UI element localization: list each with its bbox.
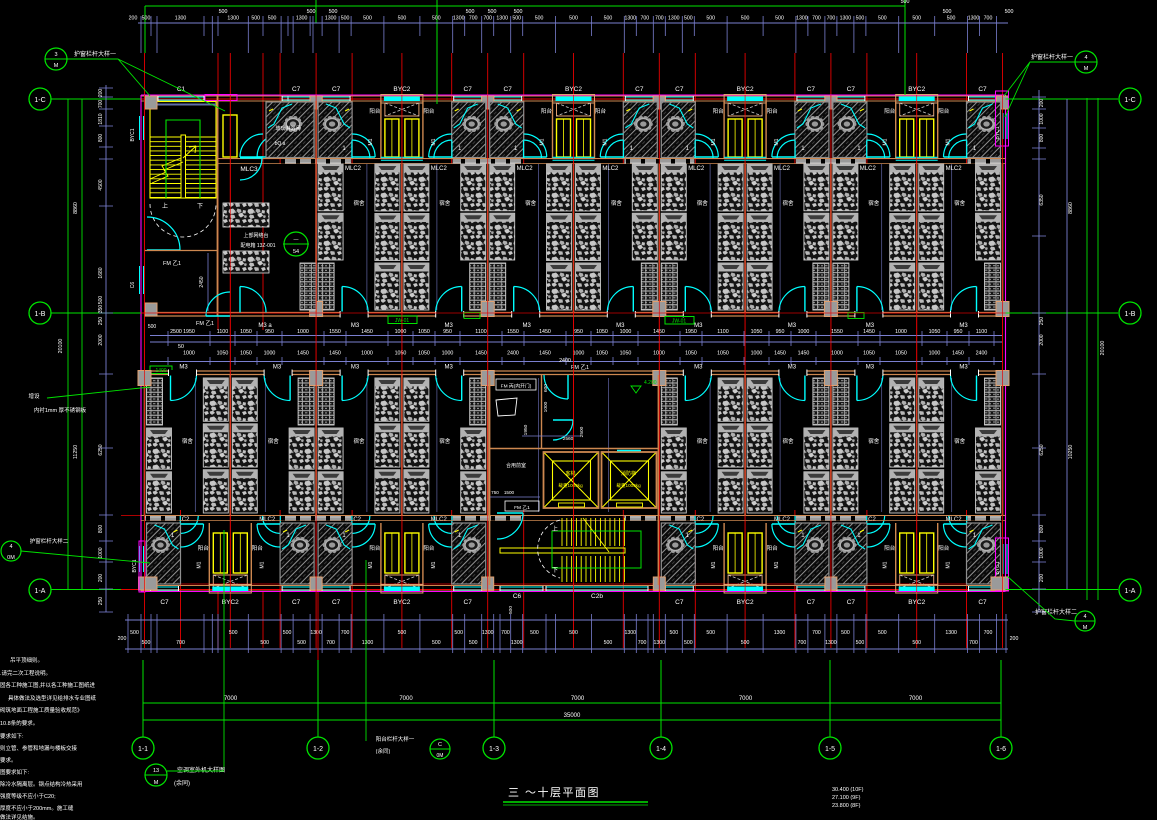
svg-text:500: 500: [469, 640, 478, 646]
svg-text:1450: 1450: [539, 351, 551, 357]
svg-text:C7: C7: [464, 599, 473, 606]
svg-text:700: 700: [483, 16, 492, 22]
svg-text:BYC2: BYC2: [393, 86, 410, 93]
svg-text:阳台: 阳台: [938, 107, 950, 115]
svg-text:(余同): (余同): [174, 779, 190, 787]
svg-text:1300: 1300: [362, 640, 374, 646]
svg-text:700: 700: [176, 640, 185, 646]
svg-text:35000: 35000: [564, 713, 581, 719]
svg-text:M3: M3: [351, 365, 360, 371]
svg-text:—: —: [294, 237, 299, 243]
svg-text:500: 500: [142, 16, 151, 22]
svg-text:1400: 1400: [155, 368, 166, 374]
svg-text:4: 4: [1083, 614, 1086, 620]
svg-text:.请完二次工程说明。: .请完二次工程说明。: [0, 669, 51, 677]
svg-text:1000: 1000: [297, 329, 309, 335]
svg-text:M1: M1: [883, 138, 889, 145]
svg-text:BYC2: BYC2: [393, 599, 410, 606]
svg-text:500: 500: [841, 630, 850, 636]
svg-text:27.100 (9F): 27.100 (9F): [832, 795, 861, 801]
svg-text:500: 500: [684, 640, 693, 646]
svg-text:1050: 1050: [240, 329, 252, 335]
svg-text:砌筑地面工程施工质量验收规范》: 砌筑地面工程施工质量验收规范》: [0, 706, 83, 714]
svg-text:500: 500: [901, 0, 910, 5]
svg-text:1300: 1300: [325, 16, 337, 22]
svg-text:500: 500: [307, 9, 316, 15]
svg-text:500: 500: [148, 324, 157, 330]
svg-text:500: 500: [706, 16, 715, 22]
svg-text:10.8条的要求。: 10.8条的要求。: [0, 719, 38, 727]
svg-text:宿舍: 宿舍: [954, 199, 966, 207]
svg-text:M3 a: M3 a: [258, 323, 272, 329]
svg-text:3: 3: [54, 52, 57, 58]
svg-text:bQ a: bQ a: [275, 141, 286, 147]
svg-text:500: 500: [260, 640, 269, 646]
svg-text:1300: 1300: [945, 630, 957, 636]
svg-text:1-A: 1-A: [1125, 588, 1136, 595]
svg-text:BYC1: BYC1: [130, 128, 136, 141]
svg-text:M1: M1: [259, 561, 265, 568]
svg-text:1-3: 1-3: [489, 746, 499, 753]
svg-text:500: 500: [530, 630, 539, 636]
svg-text:M3: M3: [179, 365, 188, 371]
svg-text:700: 700: [812, 16, 821, 22]
svg-text:MLC2: MLC2: [259, 517, 276, 523]
svg-text:宿舍: 宿舍: [697, 437, 709, 445]
svg-text:500: 500: [669, 630, 678, 636]
svg-text:阳台: 阳台: [713, 544, 725, 552]
svg-text:阳台: 阳台: [369, 544, 381, 552]
svg-text:宿舍: 宿舍: [525, 199, 537, 207]
svg-text:500: 500: [1005, 9, 1014, 15]
svg-text:FM 乙1: FM 乙1: [514, 504, 530, 511]
svg-text:500: 500: [363, 16, 372, 22]
svg-text:阳台: 阳台: [595, 107, 607, 115]
svg-text:1450: 1450: [297, 351, 309, 357]
svg-text:200: 200: [129, 16, 138, 22]
svg-text:700: 700: [501, 630, 510, 636]
svg-text:阳台: 阳台: [884, 107, 896, 115]
svg-text:消防梯: 消防梯: [621, 470, 636, 477]
svg-text:1950: 1950: [523, 424, 529, 435]
svg-text:M1: M1: [368, 138, 374, 145]
svg-text:2400: 2400: [507, 351, 519, 357]
svg-text:1450: 1450: [329, 351, 341, 357]
svg-text:吊平顶细则。: 吊平顶细则。: [10, 656, 43, 664]
svg-text:三 ～十层平面图: 三 ～十层平面图: [508, 785, 600, 799]
svg-text:M: M: [1083, 625, 1088, 631]
svg-text:M1: M1: [883, 561, 889, 568]
svg-text:M: M: [1084, 66, 1089, 72]
svg-text:1450: 1450: [539, 329, 551, 335]
svg-text:7000: 7000: [399, 696, 413, 702]
svg-text:6350: 6350: [1039, 194, 1045, 205]
svg-text:宿舍: 宿舍: [611, 199, 623, 207]
svg-text:M1: M1: [774, 138, 780, 145]
svg-text:强度等级不应小于C20;: 强度等级不应小于C20;: [0, 792, 56, 800]
svg-text:FM 丙(内开门): FM 丙(内开门): [501, 383, 532, 390]
svg-text:700: 700: [640, 16, 649, 22]
svg-text:1450: 1450: [863, 329, 875, 335]
svg-text:C7: C7: [160, 599, 169, 606]
svg-text:500: 500: [432, 16, 441, 22]
svg-text:M1: M1: [368, 561, 374, 568]
svg-text:宿舍: 宿舍: [353, 199, 365, 207]
svg-text:C7: C7: [978, 86, 987, 93]
svg-text:MLC2: MLC2: [860, 166, 877, 172]
svg-text:500: 500: [98, 296, 104, 305]
svg-text:护窗栏杆大样二: 护窗栏杆大样二: [1035, 608, 1077, 616]
svg-text:500: 500: [912, 16, 921, 22]
svg-text:8860: 8860: [1068, 202, 1074, 214]
svg-text:宿舍: 宿舍: [782, 437, 794, 445]
svg-text:1450: 1450: [798, 351, 810, 357]
svg-text:MLC2: MLC2: [946, 517, 963, 523]
svg-text:500: 500: [741, 16, 750, 22]
svg-text:700: 700: [984, 630, 993, 636]
svg-text:除冷水隔离层。钢点结构冷热采用: 除冷水隔离层。钢点结构冷热采用: [0, 780, 83, 788]
svg-text:950: 950: [443, 329, 452, 335]
svg-text:C7: C7: [292, 86, 301, 93]
svg-text:护窗栏杆大样一: 护窗栏杆大样一: [1031, 53, 1073, 61]
svg-text:800: 800: [1039, 134, 1045, 143]
svg-text:上: 上: [162, 202, 168, 210]
svg-text:M1: M1: [946, 138, 952, 145]
svg-text:13: 13: [153, 768, 159, 774]
svg-text:500: 500: [604, 16, 613, 22]
svg-text:M1: M1: [711, 561, 717, 568]
svg-text:1050: 1050: [596, 351, 608, 357]
svg-text:700: 700: [655, 16, 664, 22]
svg-text:500: 500: [943, 9, 952, 15]
svg-text:C7: C7: [675, 86, 684, 93]
svg-text:6250: 6250: [98, 444, 104, 455]
svg-text:护窗栏杆大样一: 护窗栏杆大样一: [74, 50, 116, 58]
svg-text:阳台: 阳台: [884, 544, 896, 552]
svg-text:2400: 2400: [976, 351, 988, 357]
svg-text:1-1: 1-1: [138, 746, 148, 753]
svg-text:1550: 1550: [831, 329, 843, 335]
svg-text:1-C: 1-C: [34, 97, 45, 104]
svg-text:具体做法及选型详见给排水专业图纸: 具体做法及选型详见给排水专业图纸: [8, 694, 97, 702]
svg-text:50: 50: [178, 344, 184, 350]
svg-text:1000: 1000: [798, 329, 810, 335]
svg-text:700: 700: [798, 640, 807, 646]
svg-text:阳台: 阳台: [423, 107, 435, 115]
svg-text:1-4: 1-4: [656, 746, 666, 753]
svg-text:1300: 1300: [825, 640, 837, 646]
svg-text:1300: 1300: [840, 16, 852, 22]
svg-text:2450: 2450: [199, 276, 205, 287]
svg-text:2000: 2000: [98, 334, 104, 345]
svg-text:(余同): (余同): [376, 747, 391, 755]
svg-text:8860: 8860: [73, 202, 79, 214]
svg-text:C7: C7: [332, 86, 341, 93]
svg-text:C7: C7: [807, 86, 816, 93]
svg-text:20100: 20100: [58, 339, 64, 354]
svg-text:C7: C7: [807, 599, 816, 606]
svg-text:500: 500: [398, 630, 407, 636]
svg-text:1300: 1300: [227, 16, 239, 22]
svg-text:1450: 1450: [361, 329, 373, 335]
svg-text:1300: 1300: [496, 16, 508, 22]
svg-text:C6: C6: [513, 593, 522, 600]
svg-text:500: 500: [878, 630, 887, 636]
svg-text:1300: 1300: [296, 16, 308, 22]
svg-text:200: 200: [98, 89, 104, 98]
svg-text:下: 下: [197, 203, 203, 210]
svg-text:MLC2: MLC2: [774, 517, 791, 523]
svg-text:阳台: 阳台: [767, 107, 779, 115]
svg-text:1000: 1000: [1039, 113, 1045, 124]
svg-text:500: 500: [432, 640, 441, 646]
svg-text:1000: 1000: [831, 351, 843, 357]
svg-text:1-2: 1-2: [313, 746, 323, 753]
svg-text:500: 500: [741, 640, 750, 646]
svg-text:图要求如下:: 图要求如下:: [0, 768, 30, 776]
svg-text:11250: 11250: [73, 445, 79, 459]
svg-text:500: 500: [454, 630, 463, 636]
svg-text:1100: 1100: [717, 329, 728, 335]
svg-text:玻璃淋浴间: 玻璃淋浴间: [275, 125, 300, 132]
svg-text:C7: C7: [635, 86, 644, 93]
svg-text:C7: C7: [847, 86, 856, 93]
svg-text:500: 500: [604, 640, 613, 646]
svg-text:7000: 7000: [571, 696, 585, 702]
svg-text:7000: 7000: [909, 696, 923, 702]
svg-text:500: 500: [514, 9, 523, 15]
svg-text:1950: 1950: [685, 329, 697, 335]
svg-text:上部网络台: 上部网络台: [243, 232, 268, 239]
svg-text:1000: 1000: [751, 351, 763, 357]
svg-text:700: 700: [469, 16, 478, 22]
svg-text:BYC2: BYC2: [737, 599, 754, 606]
svg-text:1000: 1000: [442, 351, 454, 357]
svg-text:内衬1mm 厚不锈钢板: 内衬1mm 厚不锈钢板: [34, 406, 87, 414]
svg-text:4: 4: [9, 544, 12, 550]
svg-text:950: 950: [574, 329, 583, 335]
svg-text:500: 500: [775, 16, 784, 22]
svg-text:宿舍: 宿舍: [954, 437, 966, 445]
svg-text:350: 350: [98, 305, 104, 314]
svg-text:700: 700: [969, 640, 978, 646]
svg-text:M3: M3: [788, 365, 797, 371]
svg-text:M3: M3: [523, 323, 532, 329]
svg-text:4500: 4500: [98, 179, 104, 190]
svg-text:1-6: 1-6: [996, 746, 1006, 753]
svg-text:BYC2: BYC2: [565, 86, 582, 93]
svg-text:800: 800: [1039, 525, 1045, 534]
svg-text:1050: 1050: [395, 351, 407, 357]
svg-text:1-A: 1-A: [35, 588, 46, 595]
svg-text:500: 500: [268, 16, 277, 22]
svg-text:1300: 1300: [654, 640, 666, 646]
svg-text:1000: 1000: [895, 329, 907, 335]
svg-text:宿舍: 宿舍: [782, 199, 794, 207]
svg-text:空调室外机大样图: 空调室外机大样图: [177, 766, 225, 774]
svg-text:C7: C7: [332, 599, 341, 606]
svg-text:500: 500: [329, 9, 338, 15]
svg-text:700: 700: [984, 16, 993, 22]
svg-text:1000: 1000: [929, 351, 941, 357]
svg-text:950: 950: [954, 329, 963, 335]
svg-text:阳台: 阳台: [423, 544, 435, 552]
svg-text:500: 500: [878, 16, 887, 22]
svg-text:M: M: [154, 780, 159, 786]
svg-text:C7: C7: [675, 599, 684, 606]
svg-text:500: 500: [512, 16, 521, 22]
svg-text:500: 500: [535, 16, 544, 22]
svg-text:250: 250: [98, 597, 104, 606]
svg-text:500: 500: [251, 16, 260, 22]
svg-text:500: 500: [508, 606, 514, 614]
svg-text:500: 500: [569, 630, 578, 636]
svg-text:4: 4: [1084, 55, 1087, 61]
svg-text:1300: 1300: [968, 16, 980, 22]
svg-text:宿舍: 宿舍: [697, 199, 709, 207]
svg-text:下: 下: [552, 567, 558, 574]
svg-text:1100: 1100: [475, 329, 486, 335]
svg-text:1300: 1300: [796, 16, 808, 22]
svg-text:护窗栏杆大样二: 护窗栏杆大样二: [30, 537, 69, 545]
svg-text:1050: 1050: [751, 329, 763, 335]
svg-text:合用前室: 合用前室: [506, 462, 526, 469]
svg-text:200: 200: [98, 574, 104, 583]
svg-text:1680: 1680: [98, 267, 104, 278]
svg-text:配电箱 13Z-001: 配电箱 13Z-001: [240, 242, 275, 249]
svg-text:FM 乙1: FM 乙1: [163, 260, 181, 267]
svg-text:阳台: 阳台: [198, 544, 210, 552]
svg-text:M1: M1: [540, 138, 546, 145]
svg-text:1450: 1450: [774, 351, 786, 357]
svg-text:500: 500: [684, 16, 693, 22]
svg-text:7000: 7000: [739, 696, 753, 702]
svg-text:阳台栏杆大样一: 阳台栏杆大样一: [376, 735, 415, 743]
svg-text:M3: M3: [351, 323, 360, 329]
svg-text:M1: M1: [431, 561, 437, 568]
svg-text:MLC2: MLC2: [688, 166, 705, 172]
svg-text:1550: 1550: [329, 329, 341, 335]
svg-text:阳台: 阳台: [938, 544, 950, 552]
svg-text:阳台: 阳台: [541, 107, 553, 115]
svg-text:1300: 1300: [625, 16, 637, 22]
svg-text:1100: 1100: [976, 329, 987, 335]
svg-text:30.400 (10F): 30.400 (10F): [832, 787, 864, 793]
svg-text:600: 600: [543, 384, 549, 392]
svg-text:700: 700: [341, 630, 350, 636]
svg-text:1100: 1100: [217, 329, 228, 335]
svg-text:1950: 1950: [183, 329, 195, 335]
svg-text:1050: 1050: [717, 351, 729, 357]
svg-text:1050: 1050: [895, 351, 907, 357]
svg-text:0M: 0M: [7, 555, 15, 561]
svg-text:M: M: [54, 63, 59, 69]
svg-text:1050: 1050: [596, 329, 608, 335]
svg-text:1-B: 1-B: [35, 311, 46, 318]
svg-text:宿舍: 宿舍: [439, 437, 451, 445]
svg-text:950: 950: [776, 329, 785, 335]
svg-text:要求如下:: 要求如下:: [0, 732, 24, 740]
svg-text:BYC2: BYC2: [908, 599, 925, 606]
svg-text:MLC2: MLC2: [345, 166, 362, 172]
svg-text:1000: 1000: [264, 351, 276, 357]
svg-text:1000: 1000: [183, 351, 195, 357]
svg-text:500: 500: [706, 630, 715, 636]
svg-text:M1: M1: [774, 561, 780, 568]
svg-text:M1: M1: [603, 138, 609, 145]
svg-text:1050: 1050: [240, 351, 252, 357]
svg-text:1300: 1300: [668, 16, 680, 22]
svg-text:宿舍: 宿舍: [439, 199, 451, 207]
svg-text:宿舍: 宿舍: [353, 437, 365, 445]
svg-text:则立管、参管和地漏与楼板交接: 则立管、参管和地漏与楼板交接: [0, 744, 78, 752]
svg-text:500: 500: [283, 630, 292, 636]
svg-text:MLC2: MLC2: [431, 517, 448, 523]
svg-text:1000: 1000: [98, 547, 104, 558]
svg-text:2000: 2000: [1039, 334, 1045, 345]
svg-text:1300: 1300: [625, 630, 637, 636]
svg-text:500: 500: [569, 16, 578, 22]
svg-text:1050: 1050: [418, 351, 430, 357]
svg-text:C7: C7: [464, 86, 473, 93]
svg-text:1050: 1050: [620, 351, 632, 357]
svg-text:500: 500: [856, 640, 865, 646]
svg-text:500: 500: [130, 630, 139, 636]
svg-text:1300: 1300: [774, 630, 786, 636]
svg-text:做法详见结施。: 做法详见结施。: [0, 813, 39, 820]
svg-text:MLC2: MLC2: [946, 166, 963, 172]
svg-text:500: 500: [142, 640, 151, 646]
svg-text:阳台: 阳台: [767, 544, 779, 552]
svg-text:1000: 1000: [573, 351, 585, 357]
svg-text:500: 500: [219, 9, 228, 15]
svg-text:500: 500: [488, 9, 497, 15]
svg-text:M3: M3: [445, 365, 454, 371]
svg-text:BYC2: BYC2: [908, 86, 925, 93]
svg-text:700: 700: [812, 630, 821, 636]
svg-text:C7: C7: [847, 599, 856, 606]
svg-text:宿舍: 宿舍: [182, 437, 194, 445]
svg-text:阳台: 阳台: [252, 544, 264, 552]
svg-text:1000: 1000: [395, 329, 407, 335]
svg-text:载重1000kg: 载重1000kg: [616, 482, 641, 489]
svg-text:厚度不应小于200mm。施工缝: 厚度不应小于200mm。施工缝: [0, 804, 74, 812]
svg-text:阳台: 阳台: [713, 107, 725, 115]
svg-text:1050: 1050: [929, 329, 941, 335]
svg-text:2560: 2560: [563, 436, 574, 442]
svg-text:1550: 1550: [507, 329, 519, 335]
svg-text:C7: C7: [978, 599, 987, 606]
svg-text:载重1000kg: 载重1000kg: [558, 482, 583, 489]
svg-text:1300: 1300: [482, 630, 494, 636]
svg-text:1000: 1000: [361, 351, 373, 357]
svg-text:200: 200: [1039, 99, 1045, 108]
svg-text:4.200: 4.200: [644, 380, 657, 386]
svg-text:500: 500: [947, 16, 956, 22]
svg-text:1300: 1300: [453, 16, 465, 22]
svg-text:1810: 1810: [98, 113, 104, 124]
svg-text:800: 800: [98, 525, 104, 534]
svg-text:MLC2: MLC2: [602, 166, 619, 172]
svg-text:200: 200: [1010, 636, 1019, 642]
svg-text:750: 750: [491, 490, 499, 495]
svg-text:950: 950: [265, 329, 274, 335]
svg-text:1000: 1000: [543, 401, 549, 412]
svg-text:700: 700: [638, 640, 647, 646]
svg-text:500: 500: [856, 16, 865, 22]
svg-text:M1: M1: [196, 561, 202, 568]
svg-text:500: 500: [229, 630, 238, 636]
